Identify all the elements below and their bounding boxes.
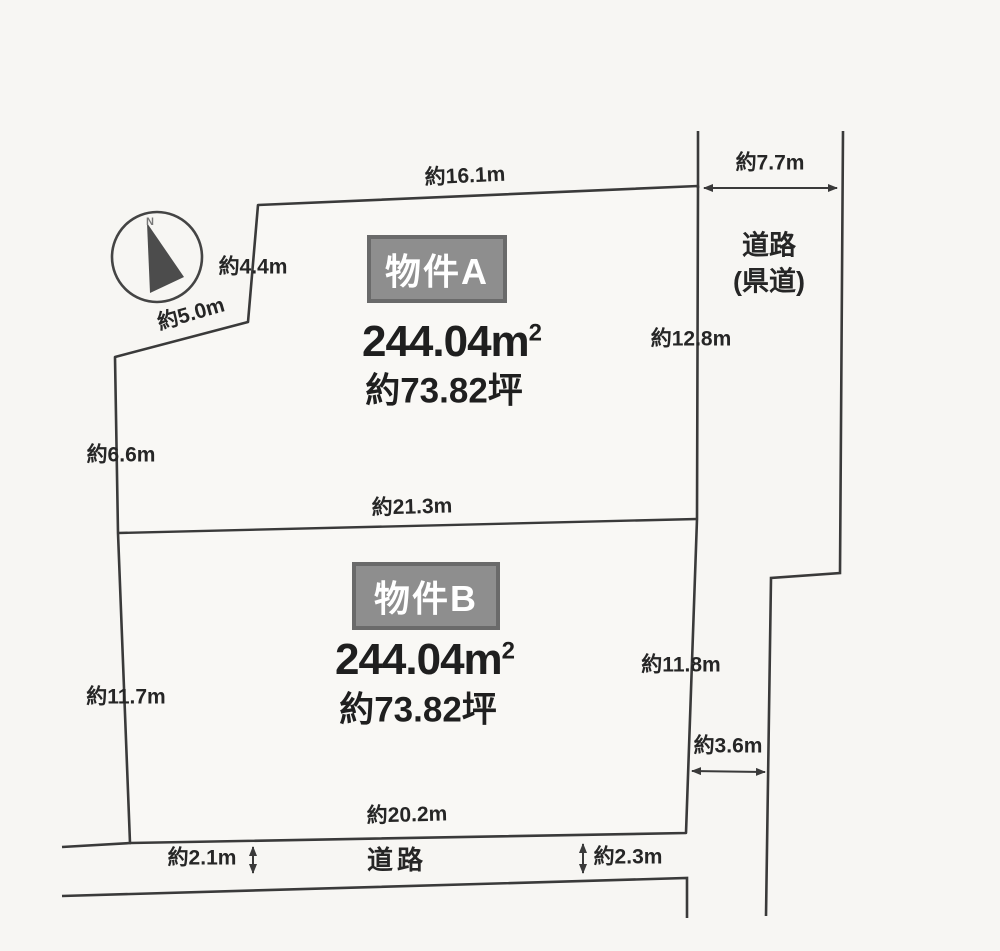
property-a-badge: 物件A — [367, 235, 507, 303]
dim-a-right: 約12.8m — [651, 329, 732, 350]
dim-a-left: 約6.6m — [87, 445, 156, 466]
dim-a-left-upper: 約4.4m — [219, 257, 288, 278]
compass-north-label: N — [146, 216, 154, 228]
right-road-name: 道路 — [742, 233, 796, 260]
property-a-area-sup: 2 — [529, 319, 542, 346]
dim-a-top: 約16.1m — [424, 164, 505, 188]
property-a-area-value: 244.04 — [362, 317, 491, 366]
dim-b-bottom: 約20.2m — [366, 803, 447, 826]
bottom-road-bottom-edge — [62, 878, 687, 918]
property-b-area-tsubo: 約73.82坪 — [339, 693, 497, 728]
north-arrow-icon — [147, 223, 184, 293]
arrow-road-width-mid — [692, 771, 765, 772]
dim-road-width-bottom-right: 約2.3m — [594, 847, 663, 868]
dim-b-left: 約11.7m — [86, 687, 165, 708]
land-plot-diagram: N 約16.1m 約7.7m 道路 (県道) 約12.8m 約4.4m 約5.0… — [0, 0, 1000, 951]
property-b-area-value: 244.04 — [335, 635, 464, 684]
dim-road-width-bottom-left: 約2.1m — [168, 848, 237, 869]
bottom-road-name: 道路 — [367, 847, 427, 873]
property-a-area-m2: 244.04m2 — [362, 320, 542, 364]
property-a-area-tsubo: 約73.82坪 — [365, 374, 523, 409]
property-a-badge-label: 物件A — [385, 243, 489, 295]
property-b-badge: 物件B — [352, 562, 500, 630]
property-b-area-unit: m — [464, 635, 502, 684]
plot-geometry — [0, 0, 1000, 951]
compass-icon — [112, 212, 202, 302]
property-b-area-sup: 2 — [502, 637, 515, 664]
dim-divider: 約21.3m — [371, 495, 452, 518]
dim-road-width-mid: 約3.6m — [694, 736, 763, 757]
dim-road-width-top: 約7.7m — [736, 153, 805, 174]
property-b-area-m2: 244.04m2 — [335, 638, 515, 682]
right-road-type: (県道) — [733, 269, 805, 296]
property-a-area-unit: m — [491, 317, 529, 366]
property-b-badge-label: 物件B — [374, 570, 478, 622]
dim-b-right: 約11.8m — [641, 655, 720, 676]
bottom-road-top-edge — [62, 843, 131, 847]
